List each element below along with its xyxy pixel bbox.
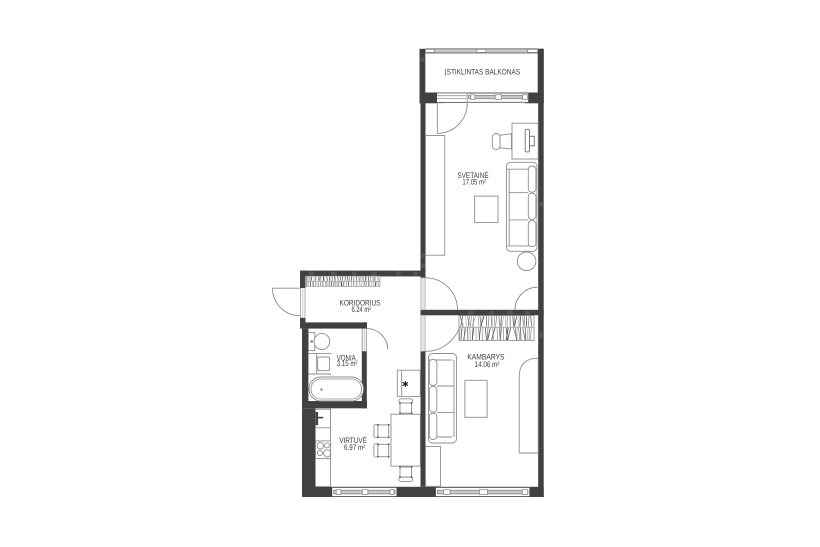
svg-text:ĮSTIKLINTAS BALKONAS: ĮSTIKLINTAS BALKONAS	[445, 68, 520, 77]
svg-text:6.97 m²: 6.97 m²	[344, 443, 365, 452]
svg-text:3.15 m²: 3.15 m²	[337, 359, 358, 368]
svg-text:17.05 m²: 17.05 m²	[462, 177, 486, 186]
svg-text:6.24 m²: 6.24 m²	[352, 305, 372, 314]
svg-text:14.06 m²: 14.06 m²	[475, 360, 500, 369]
